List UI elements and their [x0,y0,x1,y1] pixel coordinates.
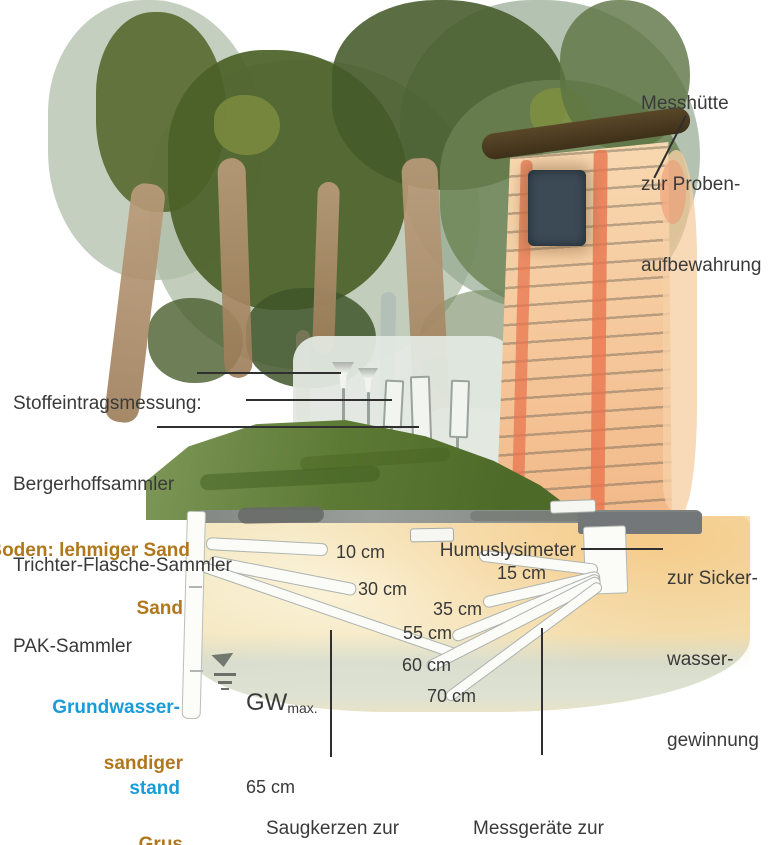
seepage-right-label: zur Sicker- wasser- gewinnung [667,511,759,808]
seepage-right-line: zur Sicker- [667,565,759,592]
layer-label-boden: Boden: lehmiger Sand [0,537,190,564]
hut-label-line: Messhütte [641,90,761,117]
layer-label-grus: sandiger Grus [104,696,183,845]
depth-label-30cm: 30 cm [358,577,407,601]
deposition-item-bergerhoff: Bergerhoffsammler [13,471,232,498]
moisture-devices-label: Messgeräte zur Bestimmung des Wassergeha… [473,761,615,845]
leader-line-trichter [246,399,392,401]
gw-max-main: GW [246,689,287,716]
hut-label: Messhütte zur Proben- aufbewahrung [641,36,761,333]
grus-label-line: Grus [104,831,183,845]
gw-max-sub: max. [287,700,317,716]
depth-label-70cm: 70 cm [427,684,476,708]
seepage-right-line: wasser- [667,646,759,673]
hut-label-line: zur Proben- [641,171,761,198]
depth-label-10cm: 10 cm [336,540,385,564]
depth-label-55cm: 55 cm [403,621,452,645]
pak-sampler [410,376,432,443]
leader-line-humuslysimeter [581,548,663,550]
humuslysimeter-depth: 15 cm [497,561,546,585]
seepage-right-line: gewinnung [667,727,759,754]
suction-cups-line: Saugkerzen zur [266,815,399,842]
suction-cups-label: Saugkerzen zur Sickerwasser- gewinnung [266,761,399,845]
deposition-heading: Stoffeintragsmessung: [13,390,232,417]
depth-label-60cm: 60 cm [402,653,451,677]
collector-device [449,380,470,439]
hut-label-line: aufbewahrung [641,252,761,279]
canopy-olive [214,95,280,155]
moisture-devices-line: Messgeräte zur [473,815,615,842]
layer-label-sand: Sand [137,595,183,622]
soil-surface-dark-lump [238,506,324,523]
surface-pipe-piece [550,499,596,514]
hut-window [528,170,586,246]
grus-label-line: sandiger [104,750,183,777]
depth-label-35cm: 35 cm [433,597,482,621]
leader-line-messgeraete [541,628,543,755]
funnel-bottle-sampler [383,380,404,429]
humuslysimeter-label: Humuslysimeter [440,537,576,564]
watercolor-measurement-station-diagram: Messhütte zur Proben- aufbewahrung Stoff… [0,0,782,845]
leader-line-saugkerzen [330,630,332,757]
